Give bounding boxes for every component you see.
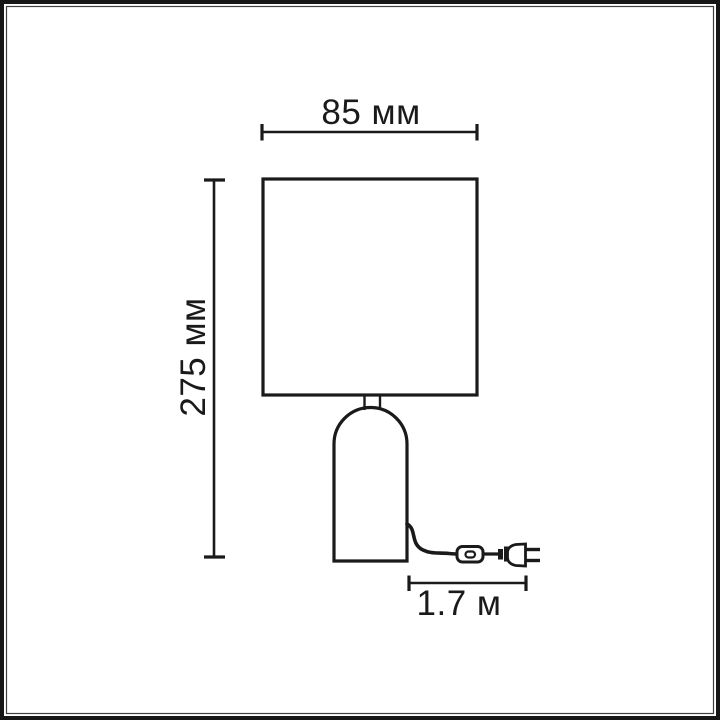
plug-body	[508, 544, 526, 566]
power-cord	[407, 524, 458, 554]
lamp-shade	[263, 179, 477, 395]
width-dimension: 85 мм	[262, 93, 477, 141]
lamp-dimension-diagram: 85 мм 275 мм	[0, 0, 720, 720]
cord-switch	[457, 547, 483, 563]
lamp-base	[334, 408, 407, 562]
height-dimension-label: 275 мм	[174, 297, 213, 416]
cord-length-dimension-label: 1.7 м	[417, 584, 502, 623]
plug-cable-boot	[498, 549, 503, 560]
diagram-canvas: 85 мм 275 мм	[0, 0, 720, 720]
height-dimension: 275 мм	[174, 180, 225, 557]
power-plug	[498, 544, 540, 566]
width-dimension-label: 85 мм	[321, 93, 420, 132]
cord-length-dimension: 1.7 м	[409, 576, 526, 624]
cord-switch-button	[466, 552, 476, 558]
